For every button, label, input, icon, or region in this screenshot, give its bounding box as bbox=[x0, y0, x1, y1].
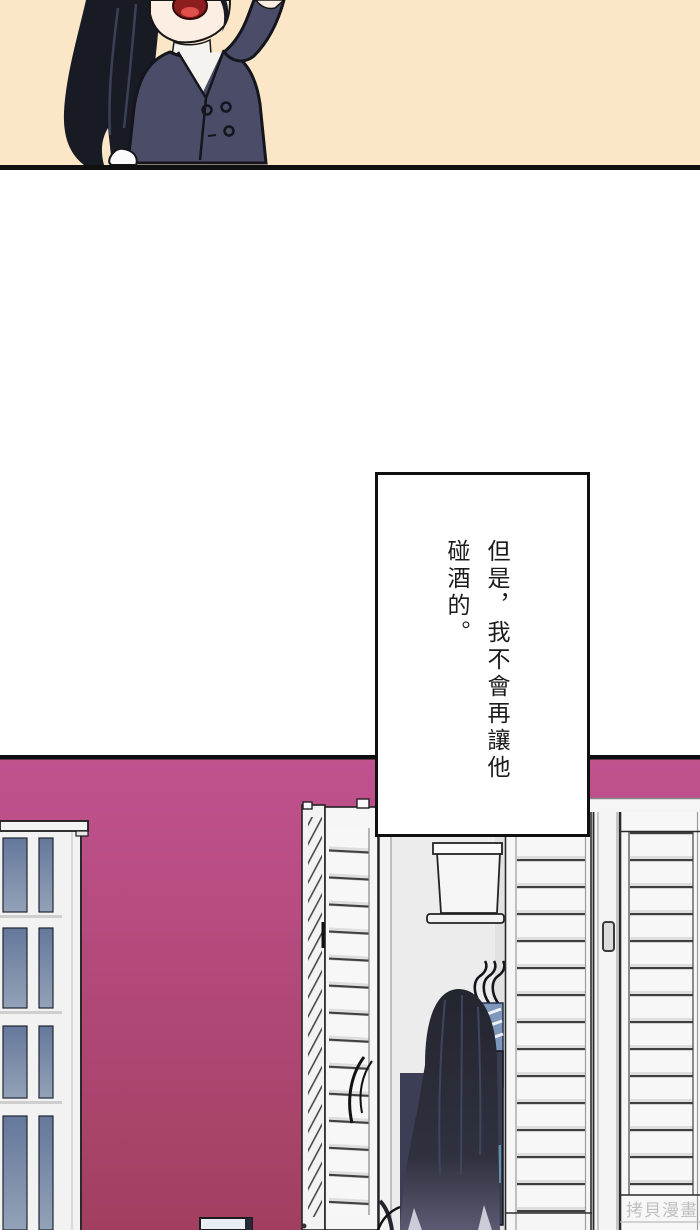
speech-line-2: 碰酒的。 bbox=[437, 539, 477, 801]
closed-closet-door-left bbox=[505, 803, 592, 1230]
door-handle bbox=[603, 922, 614, 951]
open-closet-door bbox=[302, 799, 379, 1230]
chibi-character-illustration bbox=[0, 0, 700, 165]
speech-line-1: 但是，我不會再讓他 bbox=[477, 539, 517, 801]
closet-door-stile bbox=[592, 803, 620, 1230]
speech-text: 但是，我不會再讓他 碰酒的。 bbox=[437, 539, 517, 801]
shelf-unit bbox=[0, 821, 88, 1230]
closet-shelf bbox=[427, 914, 504, 923]
character-raised-arm bbox=[224, 0, 284, 61]
room-comic-panel: 拷貝漫畫 bbox=[0, 755, 700, 1230]
room-top-border bbox=[0, 755, 700, 760]
shelf-top-board bbox=[0, 821, 88, 831]
floor-box bbox=[200, 1218, 252, 1230]
storage-box bbox=[433, 843, 502, 913]
closet-interior bbox=[378, 803, 505, 1230]
top-comic-panel bbox=[0, 0, 700, 170]
watermark-text: 拷貝漫畫 bbox=[626, 1201, 698, 1220]
speech-box: 但是，我不會再讓他 碰酒的。 bbox=[375, 472, 590, 837]
